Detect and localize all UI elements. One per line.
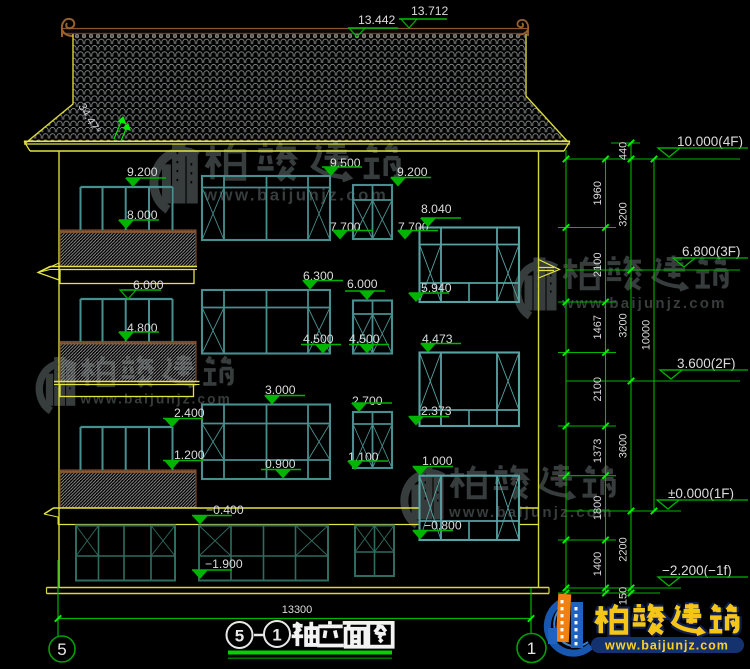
svg-text:3200: 3200 <box>618 313 630 337</box>
svg-text:3600: 3600 <box>618 434 630 458</box>
svg-text:440: 440 <box>618 142 630 160</box>
svg-text:13.712: 13.712 <box>411 4 448 18</box>
svg-text:6.800(3F): 6.800(3F) <box>682 244 741 259</box>
svg-text:1800: 1800 <box>592 496 604 520</box>
svg-text:8.040: 8.040 <box>421 202 452 216</box>
svg-text:3200: 3200 <box>618 202 630 226</box>
svg-text:2100: 2100 <box>592 253 604 277</box>
svg-text:−1.900: −1.900 <box>205 557 243 571</box>
svg-text:1: 1 <box>527 639 536 658</box>
svg-text:www.baijunjz.com: www.baijunjz.com <box>448 504 614 521</box>
svg-text:1467: 1467 <box>592 315 604 339</box>
svg-text:1: 1 <box>272 626 281 645</box>
svg-text:13300: 13300 <box>282 604 313 616</box>
svg-text:www.baijunjz.com: www.baijunjz.com <box>604 639 729 653</box>
svg-text:1960: 1960 <box>592 181 604 205</box>
svg-text:5: 5 <box>235 627 244 646</box>
svg-text:1373: 1373 <box>592 439 604 463</box>
svg-text:±0.000(1F): ±0.000(1F) <box>668 486 734 501</box>
svg-text:13.442: 13.442 <box>358 13 395 27</box>
svg-text:9.200: 9.200 <box>127 165 158 179</box>
svg-text:5: 5 <box>57 640 66 659</box>
svg-text:www.baijunjz.com: www.baijunjz.com <box>203 186 388 205</box>
svg-text:3.600(2F): 3.600(2F) <box>677 356 736 371</box>
svg-text:10.000(4F): 10.000(4F) <box>677 134 743 149</box>
svg-text:150: 150 <box>618 587 630 605</box>
svg-text:10000: 10000 <box>641 320 653 351</box>
svg-text:www.baijunjz.com: www.baijunjz.com <box>561 295 727 312</box>
svg-text:6.000: 6.000 <box>347 277 378 291</box>
svg-text:1400: 1400 <box>592 552 604 576</box>
svg-text:−2.200(−1f): −2.200(−1f) <box>662 563 732 578</box>
svg-text:2100: 2100 <box>592 377 604 401</box>
svg-text:2200: 2200 <box>618 537 630 561</box>
